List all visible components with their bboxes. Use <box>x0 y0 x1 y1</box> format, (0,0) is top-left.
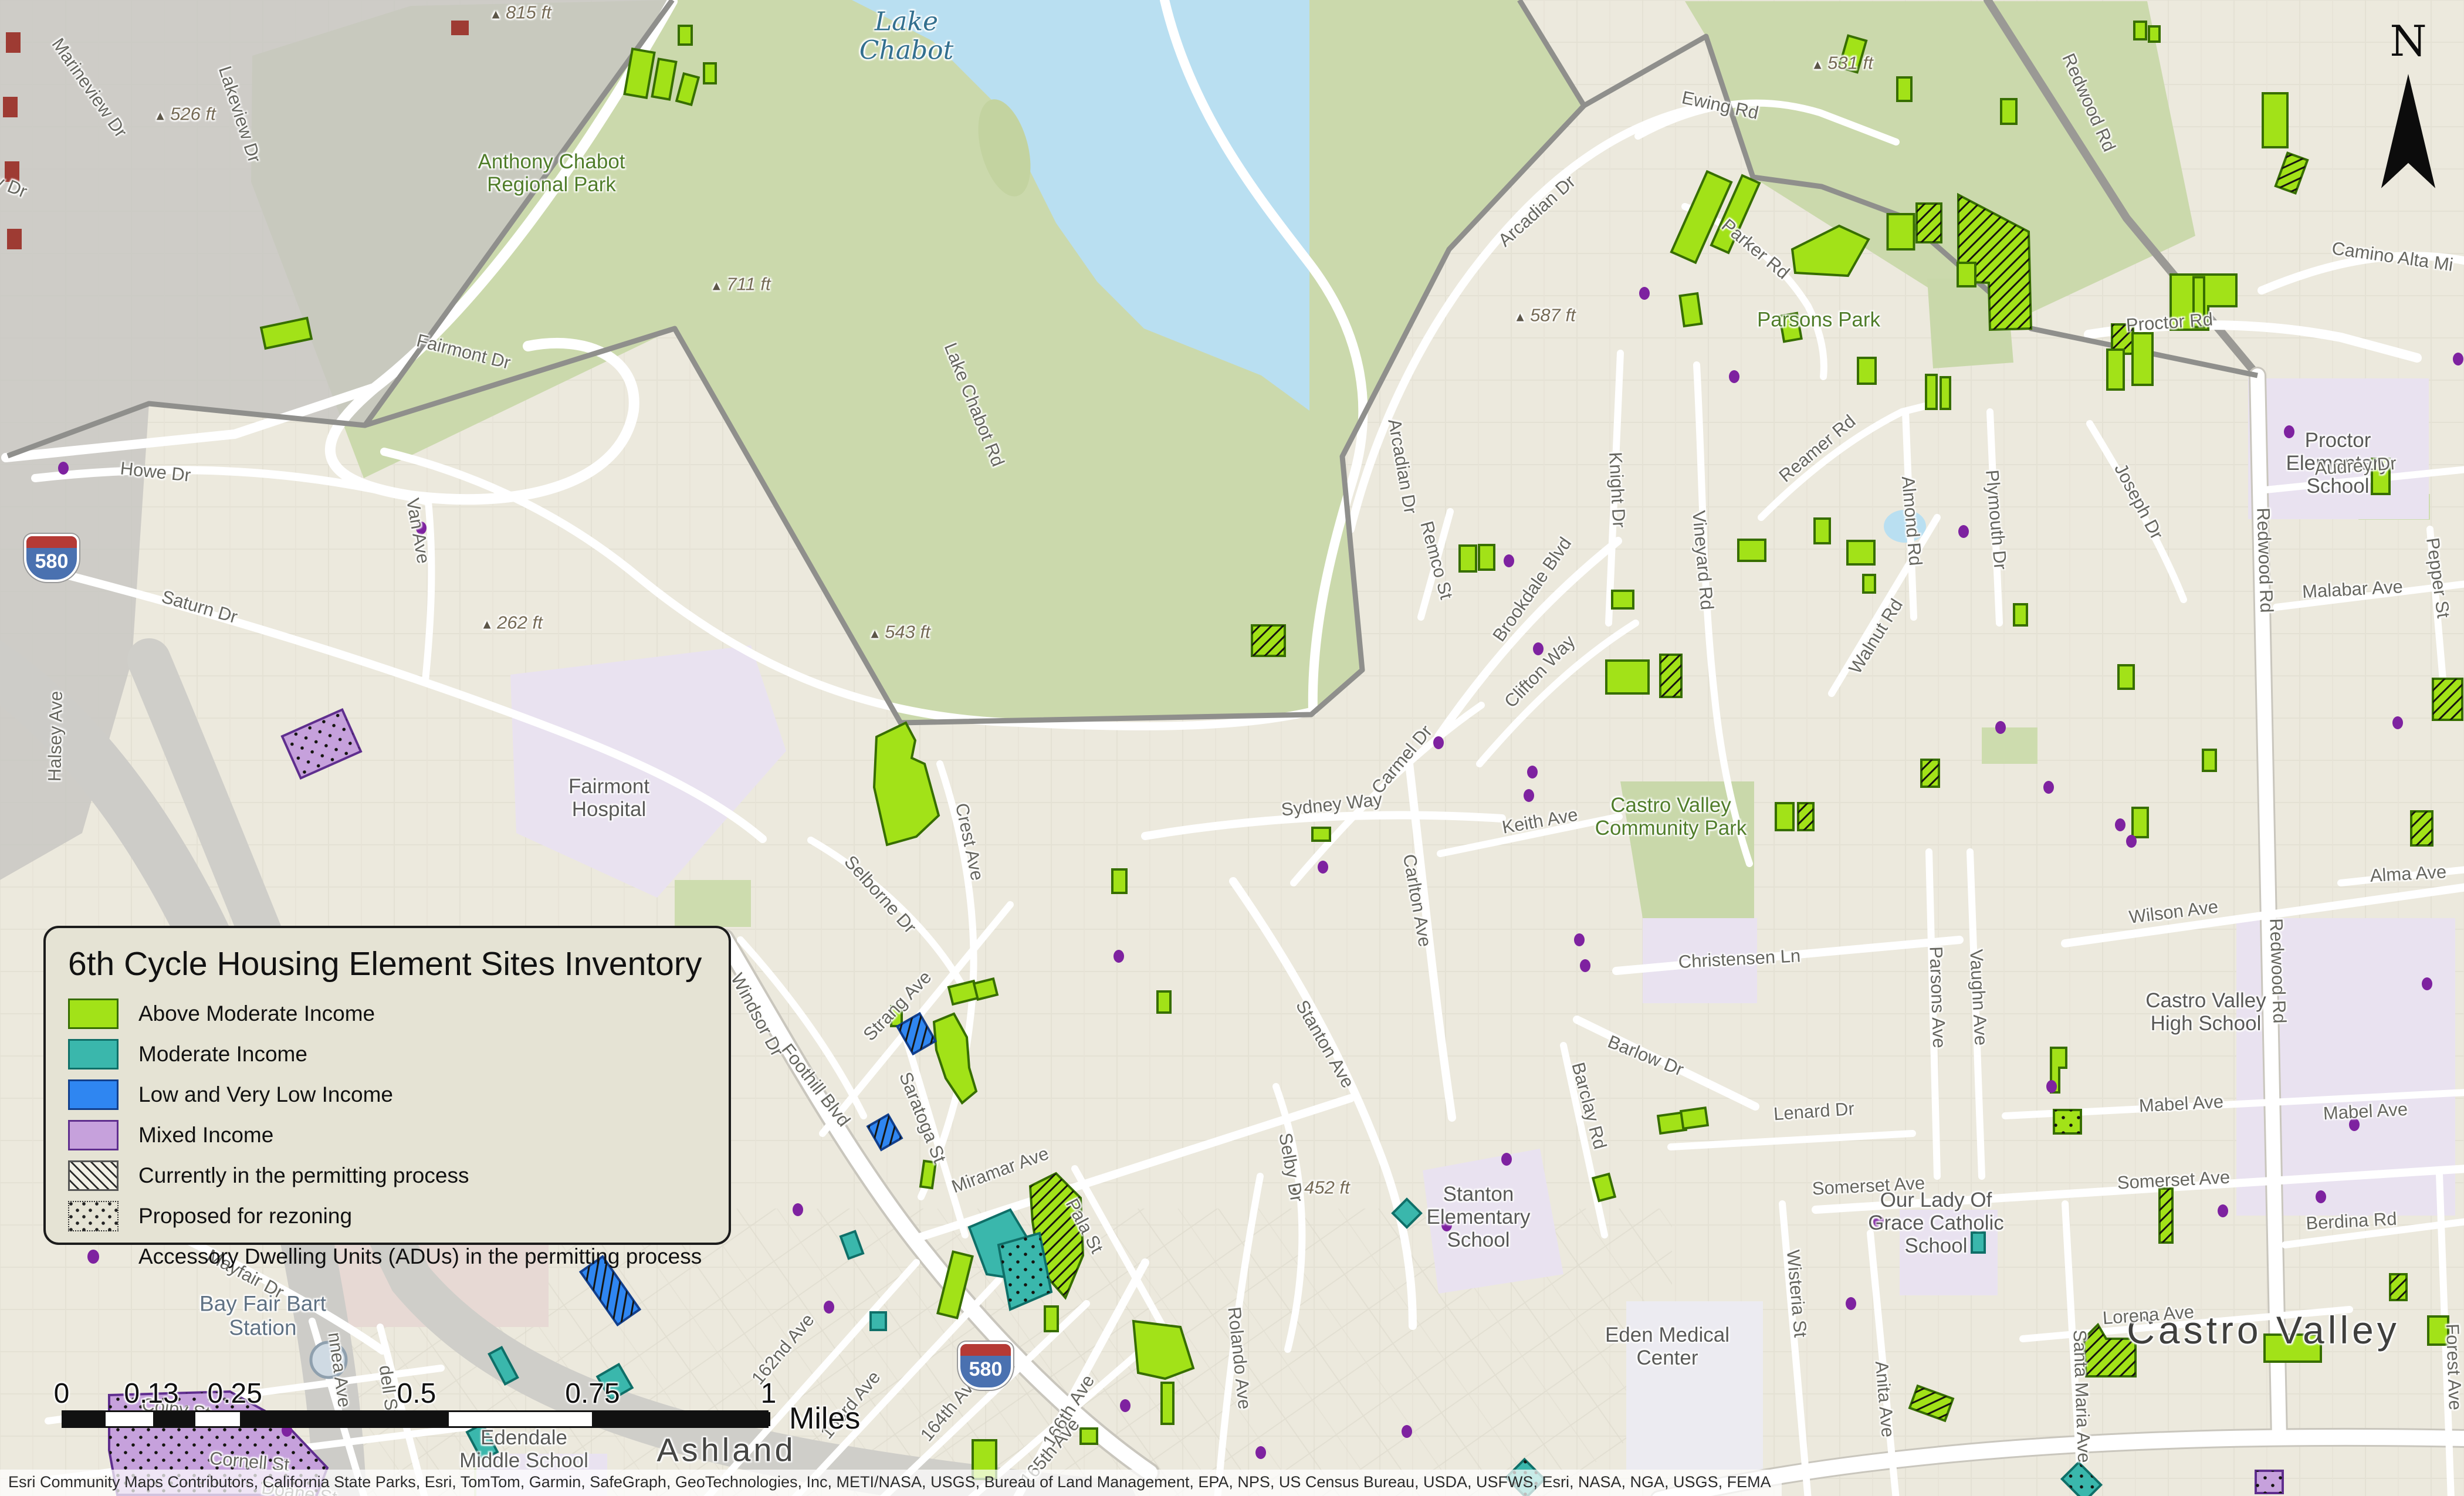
site-am[interactable] <box>2428 1316 2448 1345</box>
site-am[interactable] <box>2014 604 2027 625</box>
north-arrow: N <box>2370 16 2446 197</box>
site-am[interactable] <box>1612 591 1633 608</box>
legend-title: 6th Cycle Housing Element Sites Inventor… <box>68 945 706 983</box>
site-am[interactable] <box>1779 313 1801 342</box>
site-am[interactable] <box>2107 350 2124 390</box>
site-pattern-overlay <box>1798 803 1813 830</box>
adu-point[interactable] <box>1255 1446 1266 1459</box>
adu-point[interactable] <box>1504 554 1514 567</box>
shield-number: 580 <box>960 1358 1011 1381</box>
site-am[interactable] <box>704 63 716 83</box>
site-am[interactable] <box>1606 661 1649 693</box>
site-am[interactable] <box>1897 77 1911 101</box>
legend-item-adu: Accessory Dwelling Units (ADUs) in the p… <box>68 1241 706 1272</box>
site-am[interactable] <box>1888 214 1914 249</box>
adu-point[interactable] <box>1873 1215 1884 1228</box>
site-pattern-overlay <box>2390 1274 2407 1300</box>
scale-segment <box>63 1412 106 1426</box>
site-am[interactable] <box>2133 333 2152 385</box>
adu-point[interactable] <box>2349 1118 2360 1131</box>
hatch-swatch <box>68 1160 119 1191</box>
site-am[interactable] <box>1312 828 1330 841</box>
low-income-swatch <box>68 1079 119 1110</box>
site-am[interactable] <box>2133 808 2148 837</box>
site-pattern-overlay <box>2256 1471 2283 1493</box>
scale-tick-label: 0.5 <box>397 1377 436 1410</box>
site-am[interactable] <box>2203 750 2216 771</box>
site-am[interactable] <box>1681 1108 1708 1129</box>
adu-point[interactable] <box>2392 716 2403 729</box>
map-screenshot: Lake ChabotAnthony Chabot Regional ParkP… <box>0 0 2464 1496</box>
site-am[interactable] <box>2118 665 2134 689</box>
scale-tick-label: 0.25 <box>208 1377 262 1410</box>
adu-point[interactable] <box>416 522 427 534</box>
site-am[interactable] <box>2149 26 2160 42</box>
adu-point[interactable] <box>1402 1425 1412 1438</box>
site-am[interactable] <box>1162 1383 1173 1424</box>
adu-point[interactable] <box>2453 353 2463 365</box>
adu-point[interactable] <box>1958 525 1969 538</box>
adu-point[interactable] <box>1639 287 1650 300</box>
site-am[interactable] <box>2263 93 2287 147</box>
adu-point[interactable] <box>1527 766 1538 779</box>
adu-point[interactable] <box>824 1301 834 1314</box>
adu-point[interactable] <box>1995 721 2006 734</box>
mixed-income-swatch <box>68 1120 119 1150</box>
interstate-shield: 580 <box>24 534 79 582</box>
adu-point[interactable] <box>58 462 69 475</box>
adu-point[interactable] <box>1441 1219 1452 1231</box>
site-am[interactable] <box>1926 375 1937 409</box>
adu-point[interactable] <box>1433 736 1444 749</box>
adu-point[interactable] <box>2043 781 2054 794</box>
legend-item-mixed: Mixed Income <box>68 1120 706 1150</box>
above-moderate-swatch <box>68 999 119 1029</box>
site-am[interactable] <box>1815 519 1830 543</box>
adu-point[interactable] <box>2284 425 2294 438</box>
adu-point[interactable] <box>2218 1204 2228 1217</box>
adu-point[interactable] <box>1580 959 1590 972</box>
adu-point[interactable] <box>1318 861 1328 874</box>
site-pattern-overlay <box>2411 811 2432 845</box>
site-am[interactable] <box>1680 293 1702 326</box>
adu-point[interactable] <box>1524 789 1534 802</box>
site-mod[interactable] <box>871 1312 886 1330</box>
scale-tick-label: 0 <box>54 1377 70 1410</box>
scale-segment <box>592 1412 770 1426</box>
adu-point[interactable] <box>1846 1297 1856 1310</box>
site-pattern-overlay <box>1917 204 1941 242</box>
scale-segment <box>449 1412 593 1426</box>
scale-tick-label: 0.13 <box>124 1377 178 1410</box>
legend-item-permitting: Currently in the permitting process <box>68 1160 706 1191</box>
site-am[interactable] <box>1863 575 1875 593</box>
north-label: N <box>2370 16 2446 66</box>
adu-point[interactable] <box>2046 1080 2057 1093</box>
site-am[interactable] <box>1776 803 1793 830</box>
legend-item-above-moderate: Above Moderate Income <box>68 999 706 1029</box>
scale-segment <box>153 1412 195 1426</box>
transit-icon <box>311 1342 346 1377</box>
adu-point[interactable] <box>1729 370 1739 383</box>
scale-segment <box>240 1412 448 1426</box>
north-arrow-icon <box>2373 74 2443 194</box>
site-pattern-overlay <box>1921 760 1939 787</box>
site-pattern-overlay <box>2433 679 2462 720</box>
adu-point[interactable] <box>1501 1153 1512 1166</box>
scale-bar-ticks: 00.130.250.50.751 <box>62 1377 895 1410</box>
site-am[interactable] <box>2134 22 2146 39</box>
legend-panel: 6th Cycle Housing Element Sites Inventor… <box>43 926 731 1245</box>
adu-point[interactable] <box>2422 977 2432 990</box>
adu-point[interactable] <box>1113 950 1124 963</box>
site-am[interactable] <box>2194 277 2204 327</box>
scale-bar-track <box>62 1410 769 1428</box>
site-pattern-overlay <box>1252 625 1285 656</box>
adu-point[interactable] <box>793 1203 803 1216</box>
moderate-swatch <box>68 1039 119 1069</box>
site-am[interactable] <box>891 1006 902 1026</box>
site-am[interactable] <box>1941 377 1950 409</box>
adu-point[interactable] <box>2126 835 2137 848</box>
site-am[interactable] <box>1460 546 1476 571</box>
site-am[interactable] <box>1479 545 1494 570</box>
adu-point[interactable] <box>2316 1190 2326 1203</box>
adu-point[interactable] <box>1120 1399 1131 1412</box>
site-am[interactable] <box>679 26 692 45</box>
site-am[interactable] <box>1858 358 1876 384</box>
site-pattern-overlay <box>2160 1189 2172 1243</box>
site-am[interactable] <box>1045 1307 1058 1331</box>
site-am[interactable] <box>1081 1429 1097 1444</box>
shield-number: 580 <box>26 550 77 573</box>
site-am[interactable] <box>1738 540 1765 561</box>
site-pattern-overlay <box>1660 655 1681 697</box>
interstate-shield: 580 <box>958 1342 1013 1390</box>
site-am[interactable] <box>1958 263 1975 286</box>
site-mod[interactable] <box>1972 1233 1985 1253</box>
site-am[interactable] <box>1112 869 1126 893</box>
scale-tick-label: 1 <box>761 1377 777 1410</box>
legend-item-moderate: Moderate Income <box>68 1039 706 1069</box>
site-am[interactable] <box>920 1161 936 1188</box>
scale-bar: 00.130.250.50.751 Miles <box>62 1377 895 1436</box>
adu-dot-swatch <box>87 1250 99 1264</box>
legend-item-low: Low and Very Low Income <box>68 1079 706 1110</box>
site-am[interactable] <box>1157 991 1170 1013</box>
site-am[interactable] <box>1847 541 1874 564</box>
attribution: Esri Community Maps Contributors, Califo… <box>0 1470 1782 1496</box>
adu-point[interactable] <box>2115 818 2125 831</box>
site-am[interactable] <box>2265 1335 2321 1362</box>
scale-tick-label: 0.75 <box>565 1377 620 1410</box>
site-am[interactable] <box>974 979 997 999</box>
adu-point[interactable] <box>1533 642 1544 655</box>
site-am[interactable] <box>2372 459 2389 494</box>
site-am[interactable] <box>2001 99 2016 124</box>
adu-point[interactable] <box>1574 933 1585 946</box>
site-pattern-overlay <box>2054 1110 2081 1133</box>
scale-segment <box>106 1412 153 1426</box>
legend-item-rezoning: Proposed for rezoning <box>68 1201 706 1231</box>
dots-swatch <box>68 1201 119 1231</box>
scale-bar-unit: Miles <box>789 1401 860 1436</box>
scale-segment <box>195 1412 240 1426</box>
